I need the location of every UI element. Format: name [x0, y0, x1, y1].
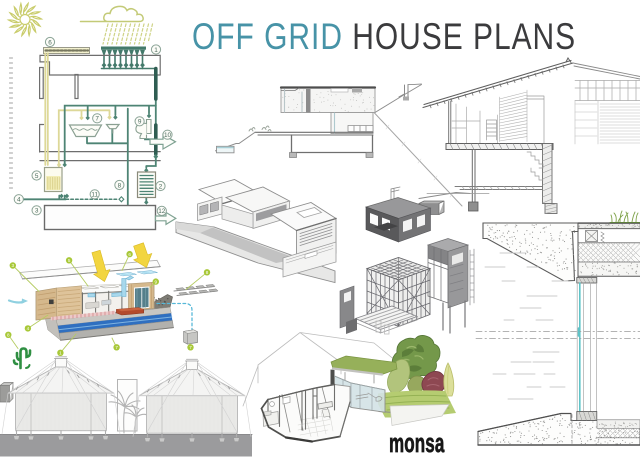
svg-text:6: 6	[48, 39, 52, 46]
svg-text:3: 3	[35, 208, 39, 215]
svg-text:1: 1	[154, 47, 158, 54]
svg-text:4: 4	[27, 326, 30, 331]
svg-text:7: 7	[115, 345, 118, 350]
svg-text:8: 8	[7, 333, 10, 338]
svg-text:7: 7	[95, 116, 99, 123]
svg-text:8: 8	[118, 182, 122, 189]
svg-text:11: 11	[91, 192, 98, 199]
svg-text:6: 6	[128, 252, 131, 257]
svg-text:5: 5	[35, 173, 39, 180]
svg-text:9: 9	[138, 119, 142, 126]
svg-text:5: 5	[68, 258, 71, 263]
svg-text:8: 8	[206, 270, 209, 275]
svg-text:1: 1	[59, 351, 62, 356]
svg-text:3: 3	[12, 263, 15, 268]
svg-text:10: 10	[164, 132, 172, 139]
svg-text:4: 4	[17, 197, 21, 204]
svg-text:7: 7	[189, 345, 192, 350]
svg-text:9: 9	[155, 279, 158, 284]
svg-text:2: 2	[159, 183, 163, 190]
svg-text:12: 12	[158, 208, 166, 215]
